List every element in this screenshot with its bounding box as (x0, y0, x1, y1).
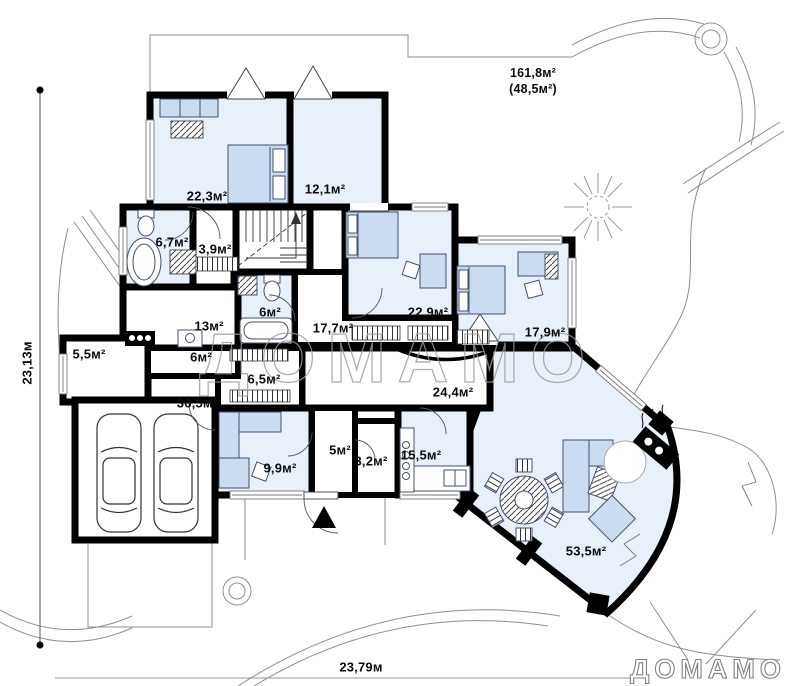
terrace-area-secondary: (48,5м²) (509, 82, 557, 96)
brand-logo: ДОМАМО (630, 654, 786, 684)
tree-icon (564, 173, 632, 241)
room-label-bedroom-2: 22,9м² (408, 305, 448, 320)
room-label-hall-upper: 12,1м² (305, 182, 345, 197)
room-label-office: 9,9м² (263, 461, 296, 476)
floor-plan: ДОМАМО ДОМАМО 161,8м² (48,5м²) 22,3м² 12… (0, 0, 800, 686)
room-label-pantry: 5,5м² (72, 347, 105, 362)
dimension-left: 23,13м (20, 341, 35, 384)
room-label-bedroom-1: 22,3м² (187, 189, 227, 204)
room-label-kitchen: 15,5м² (401, 448, 441, 463)
floor-plan-svg: ДОМАМО ДОМАМО (0, 0, 800, 686)
room-label-vestibule: 5м² (329, 443, 351, 458)
dimension-bottom: 23,79м (339, 660, 382, 675)
room-label-wc: 3,2м² (354, 454, 387, 469)
entrance-arrow-icon (312, 506, 336, 528)
room-label-wardrobe: 3,9м² (198, 242, 231, 257)
room-label-hall-mid: 6,5м² (247, 372, 280, 387)
room-label-corridor-lower: 24,4м² (433, 385, 473, 400)
room-label-corridor-upper: 17,7м² (313, 321, 353, 336)
room-label-garage: 36,5м² (177, 396, 217, 411)
room-label-bathroom-2: 6м² (259, 305, 281, 320)
room-label-bedroom-3: 17,9м² (525, 325, 565, 340)
terrace-area-label: 161,8м² (510, 66, 556, 80)
room-label-living-room: 53,5м² (566, 544, 606, 559)
room-label-bathroom-1: 6,7м² (155, 235, 188, 250)
room-label-hall-small: 6м² (190, 350, 212, 365)
room-label-kitchen-small: 13м² (194, 319, 223, 334)
